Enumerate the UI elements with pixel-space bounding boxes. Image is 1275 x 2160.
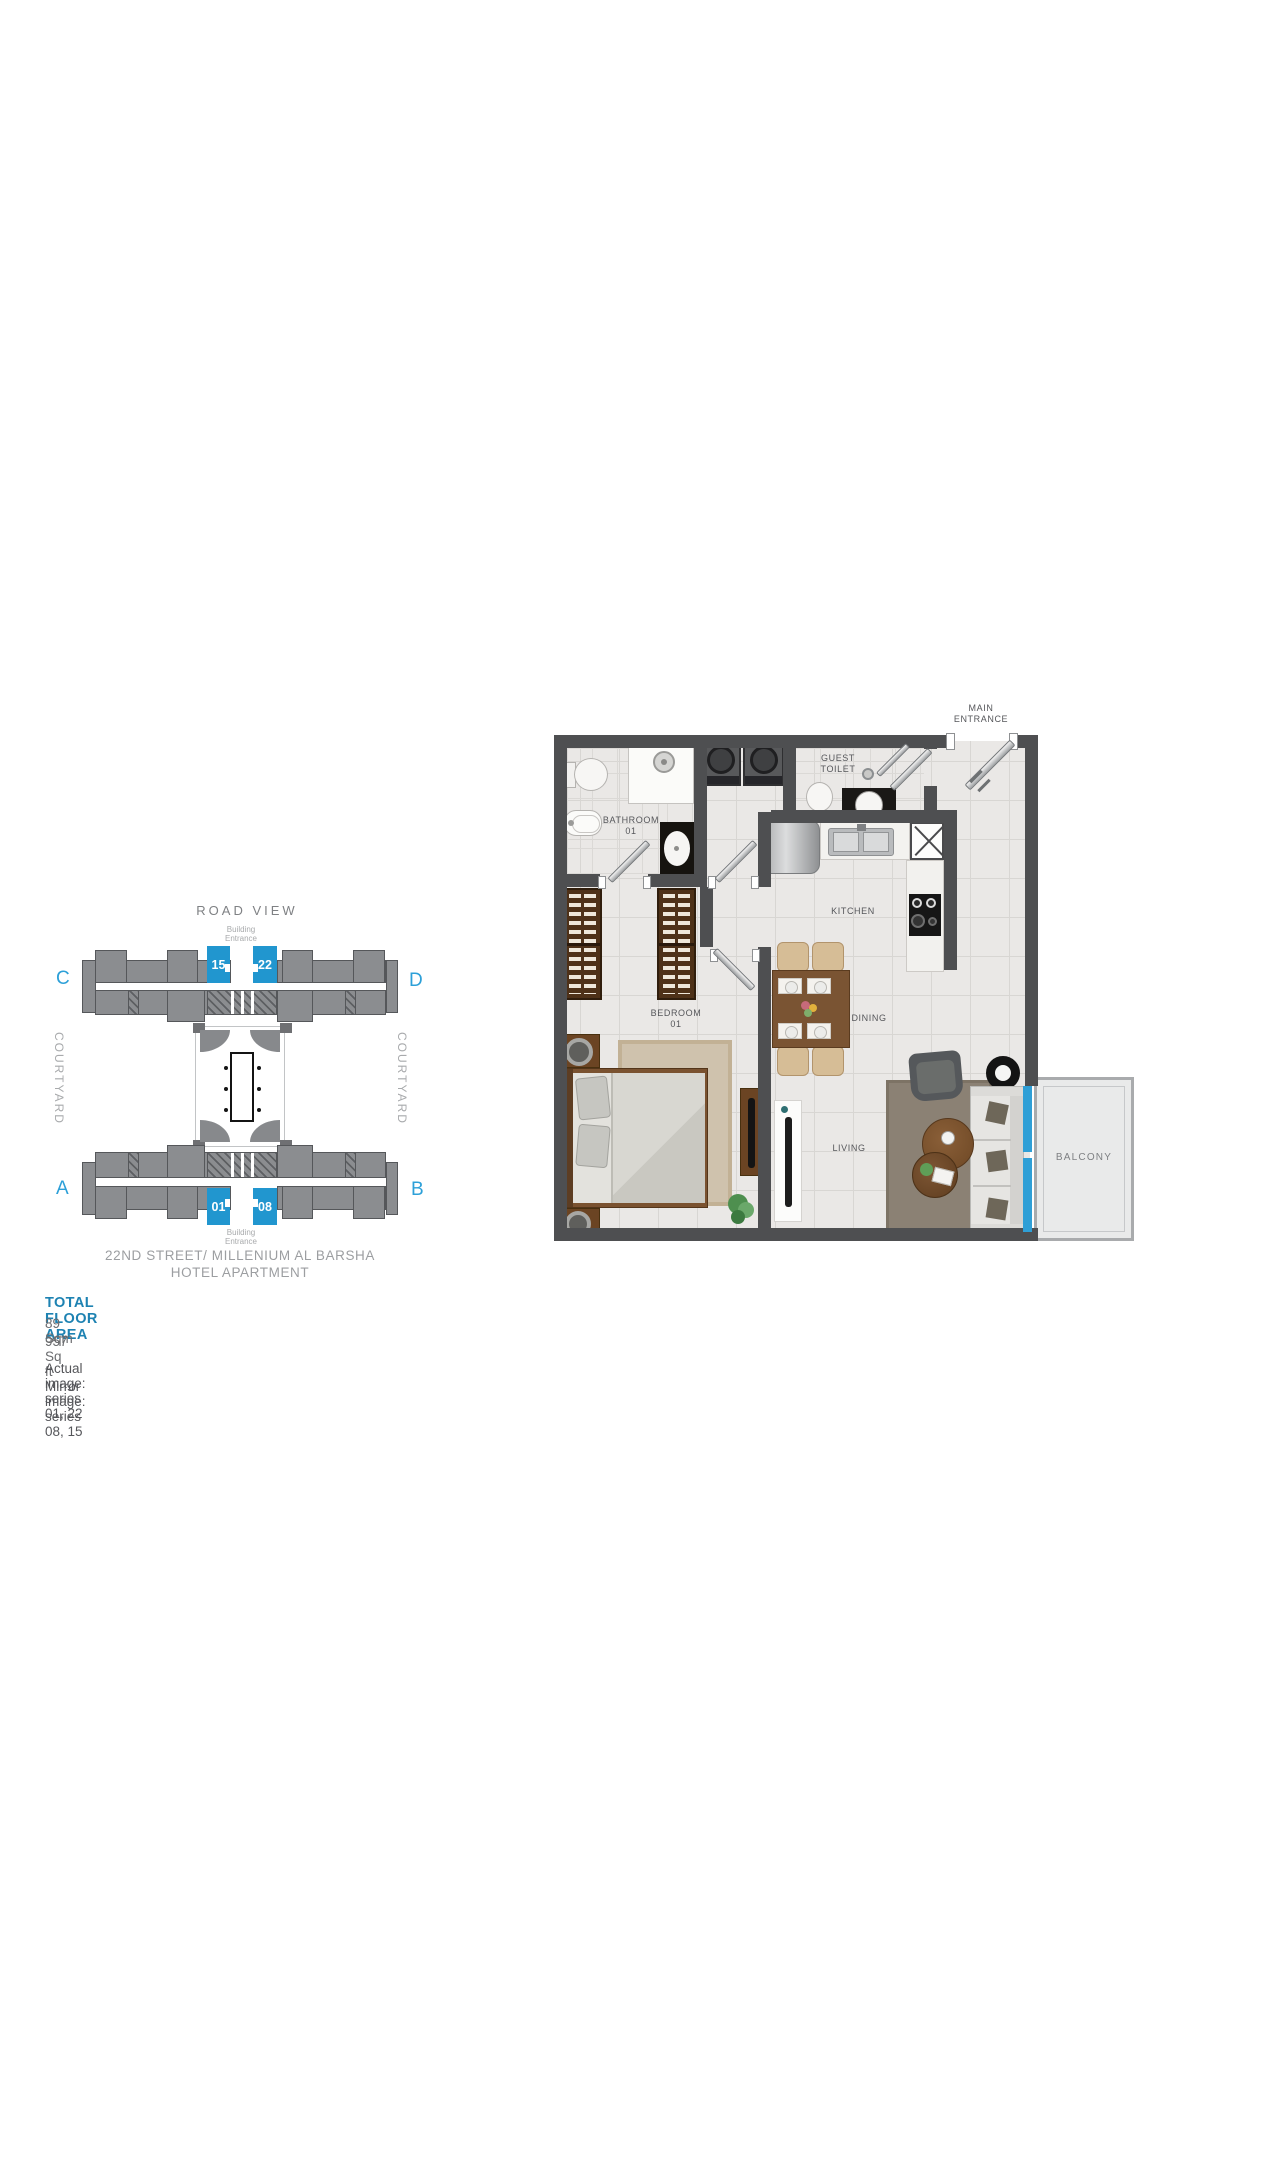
wall-kitchen-left-stub — [758, 812, 771, 887]
lobby-dot — [257, 1087, 261, 1091]
plate — [785, 981, 798, 994]
nightstand-lamp — [565, 1038, 593, 1066]
building-entrance-top-line1: Building — [225, 925, 257, 934]
burner — [911, 914, 925, 928]
sink-faucet — [857, 824, 866, 831]
balcony-area: BALCONY — [1034, 1077, 1134, 1241]
burner — [926, 898, 936, 908]
building-entrance-bottom-line2: Entrance — [225, 1237, 257, 1246]
guest-toilet-line1: GUEST — [821, 753, 856, 764]
wall-right — [1025, 735, 1038, 1086]
bathroom-label-line2: 01 — [603, 826, 659, 837]
hatch-divider — [231, 991, 234, 1014]
door-stop — [643, 876, 651, 889]
building-block — [282, 1186, 313, 1219]
sofa-back — [1010, 1087, 1023, 1233]
bedroom-label-line1: BEDROOM — [651, 1008, 702, 1019]
bed — [558, 1068, 708, 1208]
wc-bowl — [806, 782, 833, 812]
entrance-notch — [253, 1199, 258, 1207]
building-core-hatch — [128, 990, 139, 1015]
bed-duvet — [611, 1073, 705, 1203]
sink-basin — [833, 832, 859, 852]
coffee-table-small — [912, 1152, 958, 1198]
round-speaker-decor — [986, 1056, 1020, 1090]
plate — [814, 1026, 827, 1039]
building-block — [353, 1186, 385, 1219]
dryer-panel — [745, 776, 782, 784]
wall-left — [554, 735, 567, 1241]
building-core-hatch — [345, 1152, 356, 1178]
kitchen-label: KITCHEN — [831, 906, 875, 917]
wall-laundry-right — [783, 735, 796, 812]
wall-bathroom-right — [694, 735, 707, 887]
balcony-sliding-door — [1023, 1086, 1032, 1152]
page-canvas: ROAD VIEW Building Entrance 15 22 — [0, 0, 1275, 2160]
unit-number: 08 — [258, 1200, 272, 1214]
building-block — [82, 1162, 96, 1215]
tub-inner — [572, 815, 600, 833]
street-line2: HOTEL APARTMENT — [105, 1264, 375, 1281]
sofa-pillow — [986, 1198, 1009, 1221]
armchair-seat — [916, 1059, 957, 1094]
hob-icon — [909, 894, 941, 936]
hatch-divider — [251, 1153, 254, 1177]
hatch-divider — [231, 1153, 234, 1177]
sofa-seam — [973, 1185, 1011, 1187]
green-plate — [920, 1163, 933, 1176]
sofa-pillow — [985, 1101, 1009, 1125]
bathroom-toilet — [562, 758, 608, 792]
kitchen-sink — [828, 828, 894, 856]
toilet-bowl — [574, 758, 608, 791]
lobby-dot — [224, 1066, 228, 1070]
bed-pillow — [575, 1075, 611, 1120]
place-mat — [807, 978, 831, 994]
wall-guest-toilet-right — [924, 786, 937, 822]
corner-letter-c: C — [56, 968, 70, 990]
wall-bedroom-dining — [758, 947, 771, 1241]
coffee-cup — [941, 1131, 955, 1145]
hatch-divider — [241, 991, 244, 1014]
place-mat — [807, 1023, 831, 1039]
shower-head-dot — [661, 759, 667, 765]
magazine — [931, 1167, 954, 1186]
bathroom-label-line1: BATHROOM — [603, 815, 659, 826]
sink-basin — [863, 832, 889, 852]
lobby-dot — [224, 1087, 228, 1091]
wall-kitchen-right — [944, 810, 957, 970]
building-block — [386, 960, 398, 1013]
place-mat — [778, 1023, 802, 1039]
bedroom-label-line2: 01 — [651, 1019, 702, 1030]
unit-number: 22 — [258, 958, 272, 972]
balcony-sliding-door — [1023, 1158, 1032, 1232]
road-view-label: ROAD VIEW — [196, 903, 297, 918]
guest-toilet-line2: TOILET — [821, 764, 856, 775]
bedroom-tv-icon — [748, 1098, 755, 1168]
corner-letter-d: D — [409, 970, 423, 992]
building-entrance-bottom-label: Building Entrance — [225, 1228, 257, 1246]
building-block — [167, 990, 205, 1022]
sofa-seam — [973, 1139, 1011, 1141]
bathroom-vanity — [660, 822, 695, 874]
building-block — [167, 950, 198, 983]
building-block — [82, 960, 96, 1013]
door-stop — [752, 949, 760, 962]
building-block — [282, 950, 313, 983]
living-tv-icon — [785, 1117, 792, 1207]
washer-door — [707, 746, 735, 774]
wall-hall-west — [700, 887, 713, 947]
building-entrance-bottom-line1: Building — [225, 1228, 257, 1237]
main-entrance-label: MAIN ENTRANCE — [954, 703, 1008, 725]
shower-enclosure — [628, 744, 694, 804]
unit-number: 15 — [212, 958, 226, 972]
dining-chair — [812, 942, 844, 972]
wall-guest-toilet-right-stub — [924, 735, 937, 749]
lobby-dot — [224, 1108, 228, 1112]
bedroom-label: BEDROOM 01 — [651, 1008, 702, 1030]
lobby-table — [230, 1052, 254, 1122]
place-mat — [778, 978, 802, 994]
lobby-corner — [280, 1023, 292, 1033]
balcony-label: BALCONY — [1056, 1152, 1112, 1163]
street-line1: 22ND STREET/ MILLENIUM AL BARSHA — [105, 1247, 375, 1264]
entrance-notch — [225, 964, 230, 972]
wardrobe — [563, 888, 602, 1000]
building-entrance-top-line2: Entrance — [225, 934, 257, 943]
street-address: 22ND STREET/ MILLENIUM AL BARSHA HOTEL A… — [105, 1247, 375, 1281]
door-stop — [598, 876, 606, 889]
wardrobe-divider — [565, 943, 600, 946]
wardrobe — [657, 888, 696, 1000]
sofa — [970, 1086, 1024, 1234]
burner — [928, 917, 937, 926]
entrance-notch — [253, 964, 258, 972]
guest-toilet-label: GUEST TOILET — [821, 753, 856, 775]
dining-chair — [777, 1046, 809, 1076]
guest-shower-head-icon — [862, 768, 874, 780]
hatch-divider — [251, 991, 254, 1014]
courtyard-right-label: COURTYARD — [395, 1032, 409, 1125]
burner — [912, 898, 922, 908]
plant-icon — [731, 1210, 745, 1224]
tv-panel-decor — [781, 1106, 788, 1113]
vanity-drain — [674, 846, 679, 851]
wardrobe-divider — [659, 943, 694, 946]
building-block — [95, 950, 127, 983]
building-block — [167, 1145, 205, 1178]
wall-bathroom-bottom — [554, 874, 600, 887]
plate — [785, 1026, 798, 1039]
mirror-image-note: Mirror image: series 08, 15 — [45, 1379, 86, 1439]
main-entrance-line1: MAIN — [954, 703, 1008, 714]
dining-chair — [812, 1046, 844, 1076]
corner-letter-b: B — [411, 1179, 424, 1201]
flower-decor — [804, 1009, 812, 1017]
hatch-divider — [241, 1153, 244, 1177]
dining-table — [772, 970, 850, 1048]
lobby-dot — [257, 1108, 261, 1112]
living-tv-panel — [774, 1100, 802, 1222]
dining-label: DINING — [851, 1013, 886, 1024]
bathroom-tub — [564, 810, 602, 836]
entrance-notch — [225, 1199, 230, 1207]
building-block — [277, 990, 313, 1022]
sofa-pillow — [986, 1150, 1009, 1173]
main-entrance-line2: ENTRANCE — [954, 714, 1008, 725]
plate — [814, 981, 827, 994]
bathroom-label: BATHROOM 01 — [603, 815, 659, 837]
sofa-arm — [971, 1087, 1023, 1096]
unit-number: 01 — [212, 1200, 226, 1214]
bed-pillow — [575, 1124, 611, 1169]
building-block — [386, 1162, 398, 1215]
building-block — [95, 1186, 127, 1219]
building-block — [277, 1145, 313, 1178]
building-core-hatch — [345, 990, 356, 1015]
dining-chair — [777, 942, 809, 972]
courtyard-left-label: COURTYARD — [52, 1032, 66, 1125]
washer-panel — [702, 776, 739, 784]
corner-letter-a: A — [56, 1178, 69, 1200]
building-block — [167, 1186, 198, 1219]
wall-top — [554, 735, 948, 748]
living-label: LIVING — [832, 1143, 865, 1154]
building-entrance-top-label: Building Entrance — [225, 925, 257, 943]
door-stop — [751, 876, 759, 889]
building-block — [353, 950, 385, 983]
dryer-door — [750, 746, 778, 774]
building-core-hatch — [128, 1152, 139, 1178]
armchair — [908, 1050, 964, 1102]
tub-faucet — [568, 820, 574, 826]
entrance-door-stop — [946, 733, 955, 750]
kitchen-x-unit — [910, 822, 944, 860]
lobby-dot — [257, 1066, 261, 1070]
wall-bottom — [554, 1228, 1038, 1241]
